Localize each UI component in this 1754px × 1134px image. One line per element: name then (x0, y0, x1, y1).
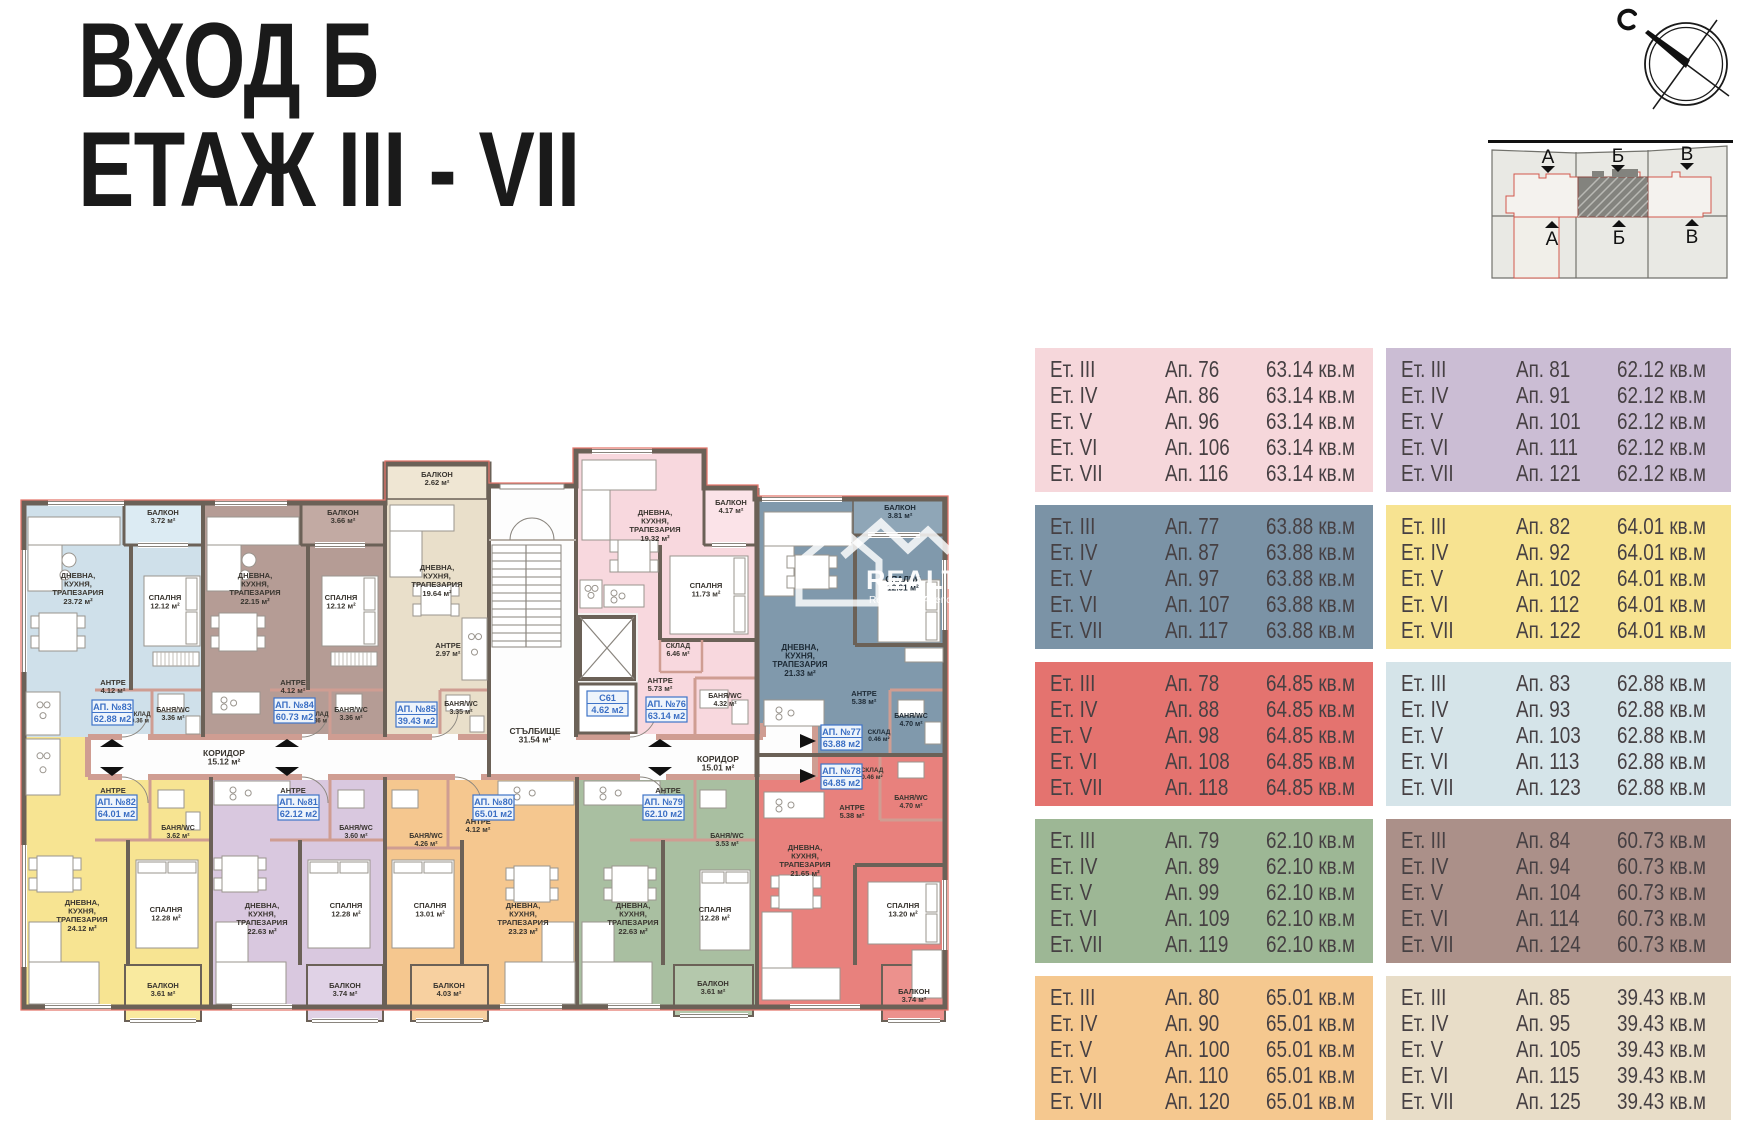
svg-text:КОРИДОР15.01 м²: КОРИДОР15.01 м² (697, 754, 739, 773)
svg-text:БАЛКОН3.72 м²: БАЛКОН3.72 м² (147, 508, 179, 525)
svg-text:АНТРЕ4.12 м²: АНТРЕ4.12 м² (100, 678, 126, 695)
svg-text:БАЛКОН4.03 м²: БАЛКОН4.03 м² (433, 981, 465, 998)
svg-text:БАЛКОН2.62 м²: БАЛКОН2.62 м² (421, 470, 453, 487)
svg-text:СПАЛНЯ12.28 м²: СПАЛНЯ12.28 м² (699, 905, 732, 923)
svg-text:СПАЛНЯ13.20 м²: СПАЛНЯ13.20 м² (887, 901, 920, 919)
svg-text:АНТРЕ5.73 м²: АНТРЕ5.73 м² (647, 676, 673, 693)
svg-text:СКЛАД0.46 м²: СКЛАД0.46 м² (861, 767, 884, 781)
svg-text:63.88 м2: 63.88 м2 (823, 739, 860, 749)
svg-text:БАЛКОН3.74 м²: БАЛКОН3.74 м² (898, 987, 930, 1004)
svg-text:АП. №78: АП. №78 (822, 766, 861, 776)
svg-text:Б: Б (1613, 228, 1625, 249)
svg-text:63.14 м2: 63.14 м2 (648, 711, 685, 721)
svg-text:АП. №81: АП. №81 (279, 797, 318, 807)
svg-text:СПАЛНЯ12.12 м²: СПАЛНЯ12.12 м² (149, 593, 182, 611)
svg-text:БАЛКОН4.17 м²: БАЛКОН4.17 м² (715, 498, 747, 515)
svg-text:СПАЛНЯ12.28 м²: СПАЛНЯ12.28 м² (330, 901, 363, 919)
svg-text:БАЛКОН3.81 м²: БАЛКОН3.81 м² (884, 503, 916, 520)
svg-text:С61: С61 (599, 693, 616, 703)
svg-text:А: А (1546, 229, 1559, 250)
svg-text:БАЛКОН3.66 м²: БАЛКОН3.66 м² (327, 508, 359, 525)
svg-text:СПАЛНЯ13.01 м²: СПАЛНЯ13.01 м² (414, 901, 447, 919)
svg-text:39.43 м2: 39.43 м2 (398, 716, 435, 726)
svg-text:60.73 м2: 60.73 м2 (276, 712, 313, 722)
svg-text:АП. №79: АП. №79 (644, 797, 683, 807)
svg-text:СПАЛНЯ12.28 м²: СПАЛНЯ12.28 м² (150, 905, 183, 923)
svg-text:АНТРЕ5.38 м²: АНТРЕ5.38 м² (839, 803, 865, 820)
svg-text:БАЛКОН3.74 м²: БАЛКОН3.74 м² (329, 981, 361, 998)
svg-text:Б: Б (1612, 146, 1624, 167)
svg-text:АП. №76: АП. №76 (647, 699, 686, 709)
svg-text:REALTA: REALTA (866, 565, 962, 595)
svg-text:АП. №84: АП. №84 (275, 700, 315, 710)
svg-text:СКЛАД0.46 м²: СКЛАД0.46 м² (868, 729, 891, 743)
svg-text:В: В (1686, 227, 1699, 248)
svg-text:4.62 м2: 4.62 м2 (591, 705, 623, 715)
svg-text:БАЛКОН3.61 м²: БАЛКОН3.61 м² (697, 979, 729, 996)
svg-text:64.01 м2: 64.01 м2 (98, 809, 135, 819)
svg-text:62.12 м2: 62.12 м2 (280, 809, 317, 819)
svg-text:БАЛКОН3.61 м²: БАЛКОН3.61 м² (147, 981, 179, 998)
svg-text:65.01 м2: 65.01 м2 (475, 809, 512, 819)
svg-text:А: А (1542, 147, 1555, 168)
svg-text:В: В (1681, 144, 1694, 165)
svg-text:62.10 м2: 62.10 м2 (645, 809, 682, 819)
svg-text:64.85 м2: 64.85 м2 (823, 778, 860, 788)
svg-text:62.88 м2: 62.88 м2 (94, 714, 131, 724)
svg-text:КОРИДОР15.12 м²: КОРИДОР15.12 м² (203, 748, 245, 767)
svg-text:СПАЛНЯ12.12 м²: СПАЛНЯ12.12 м² (325, 593, 358, 611)
svg-text:АП. №77: АП. №77 (822, 727, 861, 737)
svg-text:АНТРЕ4.12 м²: АНТРЕ4.12 м² (280, 678, 306, 695)
svg-text:АП. №82: АП. №82 (97, 797, 136, 807)
svg-text:АП. №85: АП. №85 (397, 704, 436, 714)
svg-text:АП. №80: АП. №80 (474, 797, 513, 807)
svg-text:АП. №83: АП. №83 (93, 702, 132, 712)
svg-text:Real Estate Agency: Real Estate Agency (869, 595, 956, 606)
svg-text:АНТРЕ5.38 м²: АНТРЕ5.38 м² (851, 689, 877, 706)
svg-text:СКЛАД6.46 м²: СКЛАД6.46 м² (666, 643, 691, 658)
svg-text:СПАЛНЯ11.73 м²: СПАЛНЯ11.73 м² (690, 581, 723, 599)
svg-text:АНТРЕ2.97 м²: АНТРЕ2.97 м² (435, 641, 461, 658)
